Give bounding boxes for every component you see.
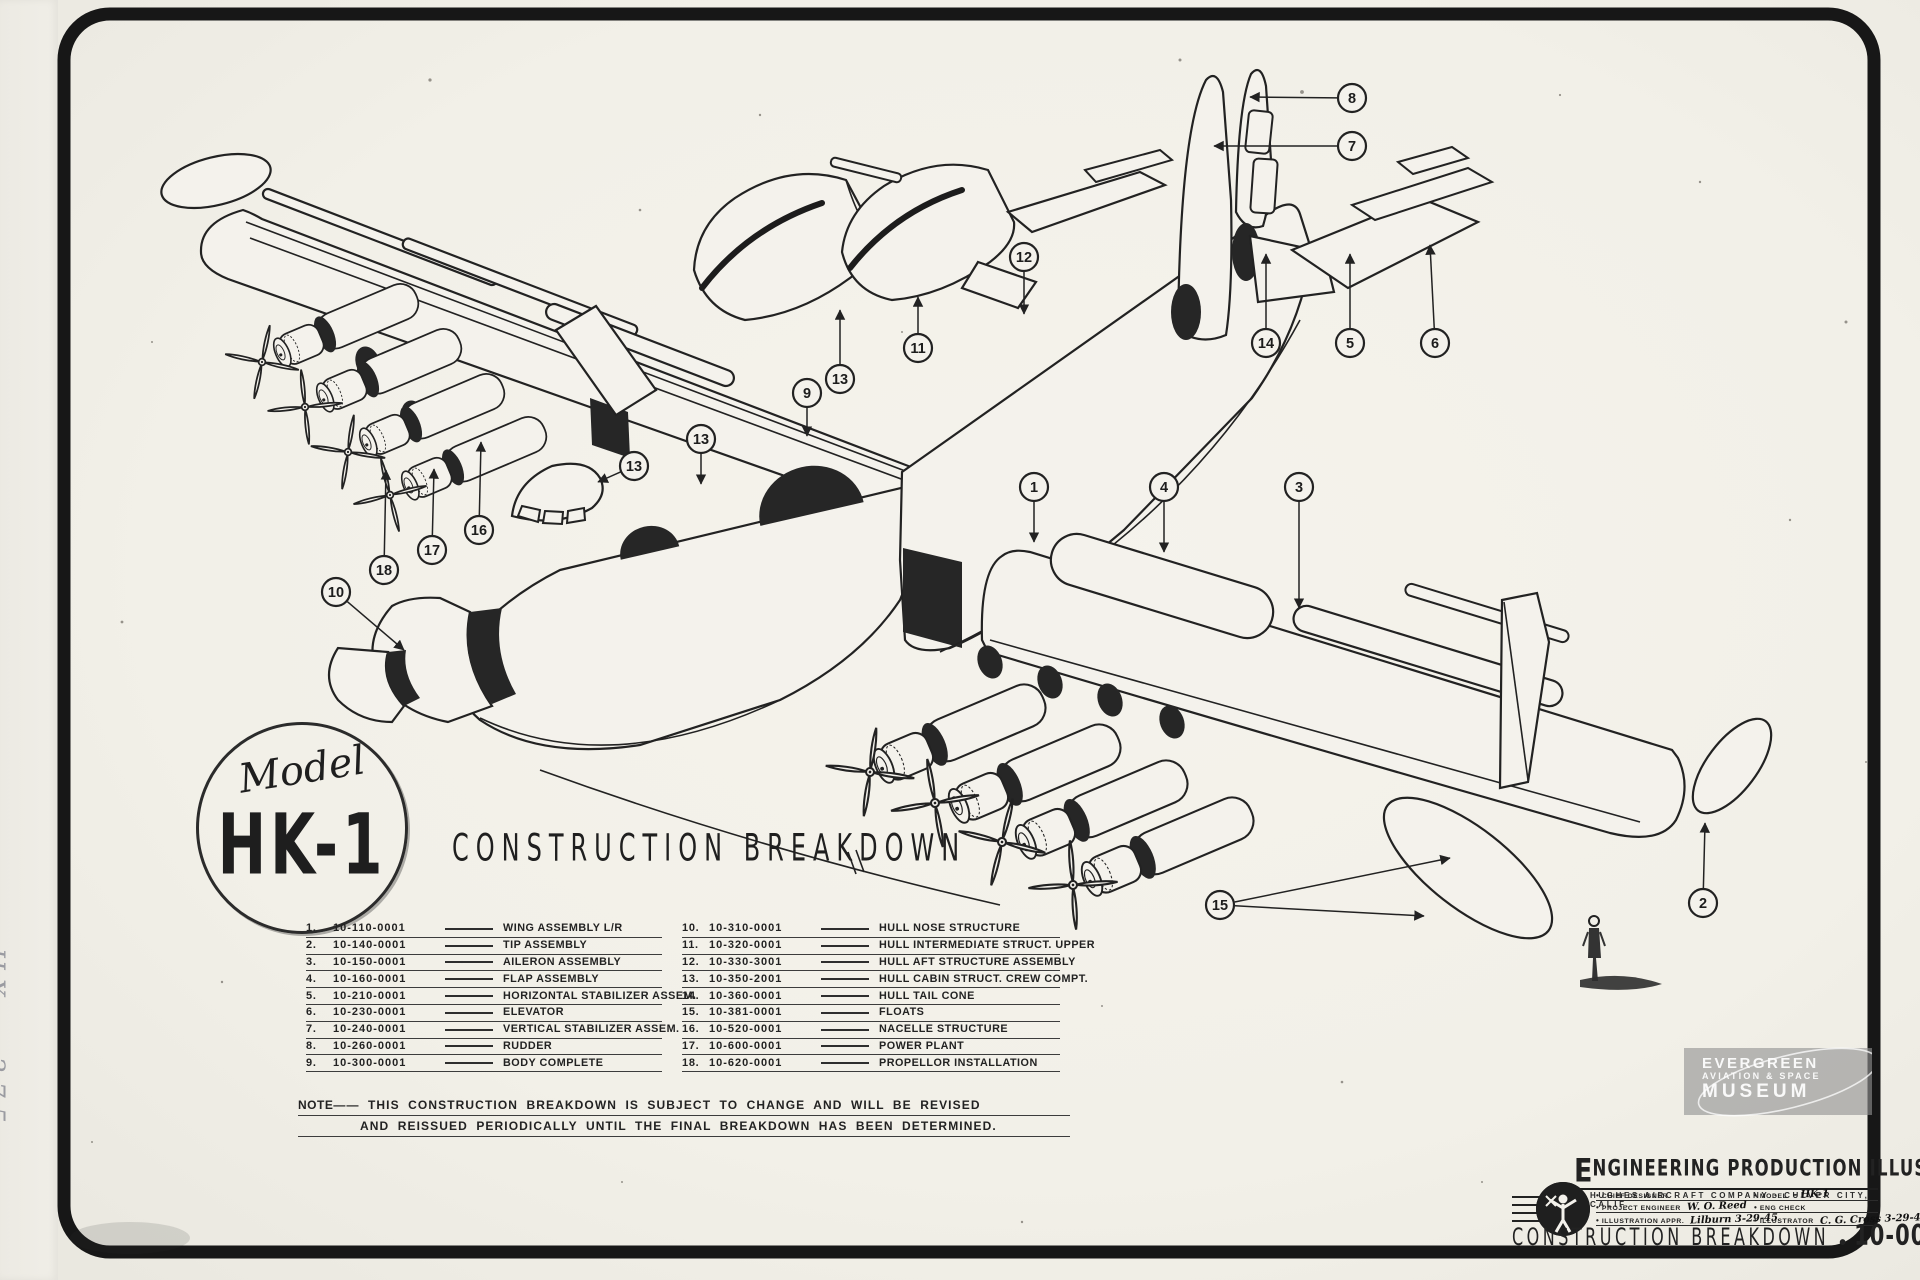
- callout-13: 13: [598, 452, 648, 482]
- part-name: FLAP ASSEMBLY: [503, 974, 662, 985]
- svg-text:17: 17: [424, 543, 440, 559]
- svg-text:1: 1: [1030, 480, 1038, 496]
- parts-row: 1.10-110-0001WING ASSEMBLY L/R: [306, 921, 662, 938]
- hull-intermediate-structure-parts: [694, 157, 1036, 320]
- dash-rule: [821, 928, 869, 930]
- dash-rule: [821, 1029, 869, 1031]
- aft-assembly: [820, 204, 1786, 989]
- bullet-icon: •: [1596, 1203, 1599, 1212]
- part-index: 15.: [682, 1007, 709, 1018]
- svg-text:2: 2: [1699, 896, 1707, 912]
- part-index: 11.: [682, 940, 709, 951]
- crew-canopy-part: [512, 464, 603, 524]
- dash-rule: [445, 1062, 493, 1064]
- part-name: HULL CABIN STRUCT. CREW COMPT.: [879, 974, 1088, 985]
- parts-row: 6.10-230-0001ELEVATOR: [306, 1005, 662, 1022]
- callout-18: 18: [370, 470, 398, 584]
- part-number: 10-350-2001: [709, 974, 821, 985]
- human-scale-figure: [1580, 916, 1662, 990]
- dash-rule: [445, 995, 493, 997]
- model-logo-number: HK-1: [199, 795, 405, 894]
- callout-7: 7: [1214, 132, 1366, 160]
- dash-rule: [445, 928, 493, 930]
- callout-11: 11: [904, 297, 932, 362]
- svg-text:13: 13: [832, 372, 848, 388]
- dash-rule: [445, 1045, 493, 1047]
- callout-6: 6: [1421, 245, 1449, 357]
- bullet-icon: •: [1754, 1191, 1757, 1200]
- parts-row: 2.10-140-0001TIP ASSEMBLY: [306, 938, 662, 955]
- model-logo: Model HK-1: [196, 722, 408, 934]
- dash-rule: [445, 978, 493, 980]
- wing-tip-part: [156, 144, 276, 218]
- note-line2: AND REISSUED PERIODICALLY UNTIL THE FINA…: [298, 1116, 1070, 1137]
- dash-rule: [445, 945, 493, 947]
- part-name: AILERON ASSEMBLY: [503, 957, 662, 968]
- part-number: 10-140-0001: [333, 940, 445, 951]
- note-line1: THIS CONSTRUCTION BREAKDOWN IS SUBJECT T…: [368, 1098, 981, 1112]
- field-label: CHIEF DESIGNER: [1602, 1193, 1668, 1200]
- note-label: NOTE: [298, 1098, 333, 1112]
- parts-row: 11.10-320-0001HULL INTERMEDIATE STRUCT. …: [682, 938, 1060, 955]
- svg-text:7: 7: [1348, 139, 1356, 155]
- part-number: 10-240-0001: [333, 1024, 445, 1035]
- part-number: 10-210-0001: [333, 991, 445, 1002]
- parts-row: 13.10-350-2001HULL CABIN STRUCT. CREW CO…: [682, 971, 1060, 988]
- footer-bullet: •: [1839, 1232, 1846, 1254]
- parts-row: 14.10-360-0001HULL TAIL CONE: [682, 988, 1060, 1005]
- tip-part: [1678, 706, 1785, 826]
- part-index: 7.: [306, 1024, 333, 1035]
- parts-row: 18.10-620-0001PROPELLOR INSTALLATION: [682, 1055, 1060, 1072]
- title-block-field-row: •PROJECT ENGINEERW. O. Reed•ENG CHECK: [1596, 1201, 1878, 1214]
- part-name: ELEVATOR: [503, 1007, 662, 1018]
- field-label: MODEL: [1760, 1193, 1788, 1200]
- watermark-swoosh: [1684, 1034, 1872, 1129]
- part-number: 10-330-3001: [709, 957, 821, 968]
- dash-rule: [821, 1012, 869, 1014]
- part-index: 10.: [682, 923, 709, 934]
- dash-rule: [821, 995, 869, 997]
- part-index: 17.: [682, 1041, 709, 1052]
- part-index: 9.: [306, 1058, 333, 1069]
- part-index: 14.: [682, 991, 709, 1002]
- parts-row: 7.10-240-0001VERTICAL STABILIZER ASSEM.: [306, 1022, 662, 1039]
- field-label: PROJECT ENGINEER: [1602, 1205, 1681, 1212]
- part-name: RUDDER: [503, 1041, 662, 1052]
- part-number: 10-160-0001: [333, 974, 445, 985]
- drawing-headline: CONSTRUCTION BREAKDOWN: [452, 842, 966, 871]
- field-chief-designer: •CHIEF DESIGNER: [1596, 1191, 1754, 1200]
- dash-rule: [821, 1045, 869, 1047]
- part-name: VERTICAL STABILIZER ASSEM.: [503, 1024, 680, 1035]
- part-index: 16.: [682, 1024, 709, 1035]
- part-index: 3.: [306, 957, 333, 968]
- svg-text:5: 5: [1346, 336, 1354, 352]
- part-index: 5.: [306, 991, 333, 1002]
- parts-row: 5.10-210-0001HORIZONTAL STABILIZER ASSEM…: [306, 988, 662, 1005]
- part-index: 12.: [682, 957, 709, 968]
- footer-title: CONSTRUCTION BREAKDOWN: [1512, 1223, 1829, 1252]
- svg-text:16: 16: [471, 523, 487, 539]
- part-index: 8.: [306, 1041, 333, 1052]
- parts-row: 15.10-381-0001FLOATS: [682, 1005, 1060, 1022]
- part-name: POWER PLANT: [879, 1041, 1060, 1052]
- part-number: 10-300-0001: [333, 1058, 445, 1069]
- svg-text:18: 18: [376, 563, 392, 579]
- callout-13: 13: [687, 425, 715, 484]
- svg-text:15: 15: [1212, 898, 1228, 914]
- svg-text:11: 11: [910, 341, 925, 357]
- svg-text:14: 14: [1258, 336, 1274, 352]
- callout-3: 3: [1285, 473, 1313, 608]
- parts-row: 12.10-330-3001HULL AFT STRUCTURE ASSEMBL…: [682, 955, 1060, 972]
- svg-text:9: 9: [803, 386, 811, 402]
- dash-rule: [821, 945, 869, 947]
- part-name: WING ASSEMBLY L/R: [503, 923, 662, 934]
- part-number: 10-260-0001: [333, 1041, 445, 1052]
- dash-rule: [821, 961, 869, 963]
- part-number: 10-150-0001: [333, 957, 445, 968]
- part-number: 10-310-0001: [709, 923, 821, 934]
- margin-handwriting: HX - 275: [0, 948, 10, 1132]
- svg-text:4: 4: [1160, 480, 1168, 496]
- svg-text:12: 12: [1016, 250, 1032, 266]
- part-number: 10-381-0001: [709, 1007, 821, 1018]
- part-name: HULL INTERMEDIATE STRUCT. UPPER: [879, 940, 1095, 951]
- bullet-icon: •: [1754, 1203, 1757, 1212]
- part-name: HULL AFT STRUCTURE ASSEMBLY: [879, 957, 1076, 968]
- parts-row: 8.10-260-0001RUDDER: [306, 1039, 662, 1056]
- dash-rule: [821, 1062, 869, 1064]
- svg-text:6: 6: [1431, 336, 1439, 352]
- bullet-icon: •: [1596, 1191, 1599, 1200]
- field-label: ENG CHECK: [1760, 1205, 1806, 1212]
- part-index: 1.: [306, 923, 333, 934]
- museum-watermark: EVERGREEN AVIATION & SPACE MUSEUM: [1684, 1048, 1872, 1115]
- part-index: 13.: [682, 974, 709, 985]
- svg-text:3: 3: [1295, 480, 1303, 496]
- part-name: HORIZONTAL STABILIZER ASSEM.: [503, 991, 697, 1002]
- part-index: 2.: [306, 940, 333, 951]
- part-name: TIP ASSEMBLY: [503, 940, 662, 951]
- part-name: FLOATS: [879, 1007, 1060, 1018]
- part-number: 10-360-0001: [709, 991, 821, 1002]
- callout-4: 4: [1150, 473, 1178, 552]
- callout-2: 2: [1689, 823, 1717, 917]
- part-index: 4.: [306, 974, 333, 985]
- parts-row: 9.10-300-0001BODY COMPLETE: [306, 1055, 662, 1072]
- callout-13: 13: [826, 310, 854, 393]
- dash-rule: [821, 978, 869, 980]
- part-number: 10-620-0001: [709, 1058, 821, 1069]
- part-number: 10-320-0001: [709, 940, 821, 951]
- parts-list-left: 1.10-110-0001WING ASSEMBLY L/R2.10-140-0…: [306, 921, 662, 1072]
- field-project-engineer: •PROJECT ENGINEERW. O. Reed: [1596, 1201, 1754, 1212]
- part-index: 6.: [306, 1007, 333, 1018]
- exploded-view-diagram: 1234567891011121313131415161718: [0, 0, 1920, 1280]
- parts-row: 4.10-160-0001FLAP ASSEMBLY: [306, 971, 662, 988]
- svg-text:13: 13: [693, 432, 709, 448]
- parts-row: 10.10-310-0001HULL NOSE STRUCTURE: [682, 921, 1060, 938]
- hull-nose-part: [329, 598, 516, 722]
- svg-text:13: 13: [626, 459, 642, 475]
- part-name: HULL NOSE STRUCTURE: [879, 923, 1060, 934]
- part-number: 10-110-0001: [333, 923, 445, 934]
- field-value: W. O. Reed: [1687, 1200, 1747, 1213]
- dash-rule: [445, 961, 493, 963]
- title-block: ENGINEERING PRODUCTION ILLUSTRATION HUGH…: [1512, 1156, 1878, 1252]
- parts-row: 16.10-520-0001NACELLE STRUCTURE: [682, 1022, 1060, 1039]
- dash-rule: [445, 1012, 493, 1014]
- title-block-heading: ENGINEERING PRODUCTION ILLUSTRATION: [1574, 1156, 1878, 1190]
- svg-text:10: 10: [328, 585, 344, 601]
- parts-row: 17.10-600-0001POWER PLANT: [682, 1039, 1060, 1056]
- title-block-fields: •CHIEF DESIGNER•MODEL- HK-1•PROJECT ENGI…: [1596, 1188, 1878, 1226]
- drawing-number: 10-000 0951-P: [1854, 1220, 1920, 1252]
- part-index: 18.: [682, 1058, 709, 1069]
- field-model: •MODEL- HK-1: [1754, 1189, 1830, 1200]
- parts-row: 3.10-150-0001AILERON ASSEMBLY: [306, 955, 662, 972]
- wing-root-part: [973, 551, 1685, 837]
- dash-rule: [445, 1029, 493, 1031]
- part-name: BODY COMPLETE: [503, 1058, 662, 1069]
- title-block-field-row: •CHIEF DESIGNER•MODEL- HK-1: [1596, 1188, 1878, 1201]
- scanned-engineering-drawing: 1234567891011121313131415161718 Model HK…: [0, 0, 1920, 1280]
- revision-note: NOTE—— THIS CONSTRUCTION BREAKDOWN IS SU…: [298, 1098, 1070, 1137]
- part-name: NACELLE STRUCTURE: [879, 1024, 1060, 1035]
- field-eng-check: •ENG CHECK: [1754, 1203, 1812, 1212]
- part-number: 10-230-0001: [333, 1007, 445, 1018]
- part-number: 10-520-0001: [709, 1024, 821, 1035]
- parts-list-right: 10.10-310-0001HULL NOSE STRUCTURE11.10-3…: [682, 921, 1060, 1072]
- part-name: PROPELLOR INSTALLATION: [879, 1058, 1060, 1069]
- part-number: 10-600-0001: [709, 1041, 821, 1052]
- svg-text:8: 8: [1348, 91, 1356, 107]
- part-name: HULL TAIL CONE: [879, 991, 1060, 1002]
- title-block-footer: CONSTRUCTION BREAKDOWN•10-000 0951-P: [1512, 1228, 1878, 1255]
- field-value: - HK-1: [1793, 1188, 1830, 1200]
